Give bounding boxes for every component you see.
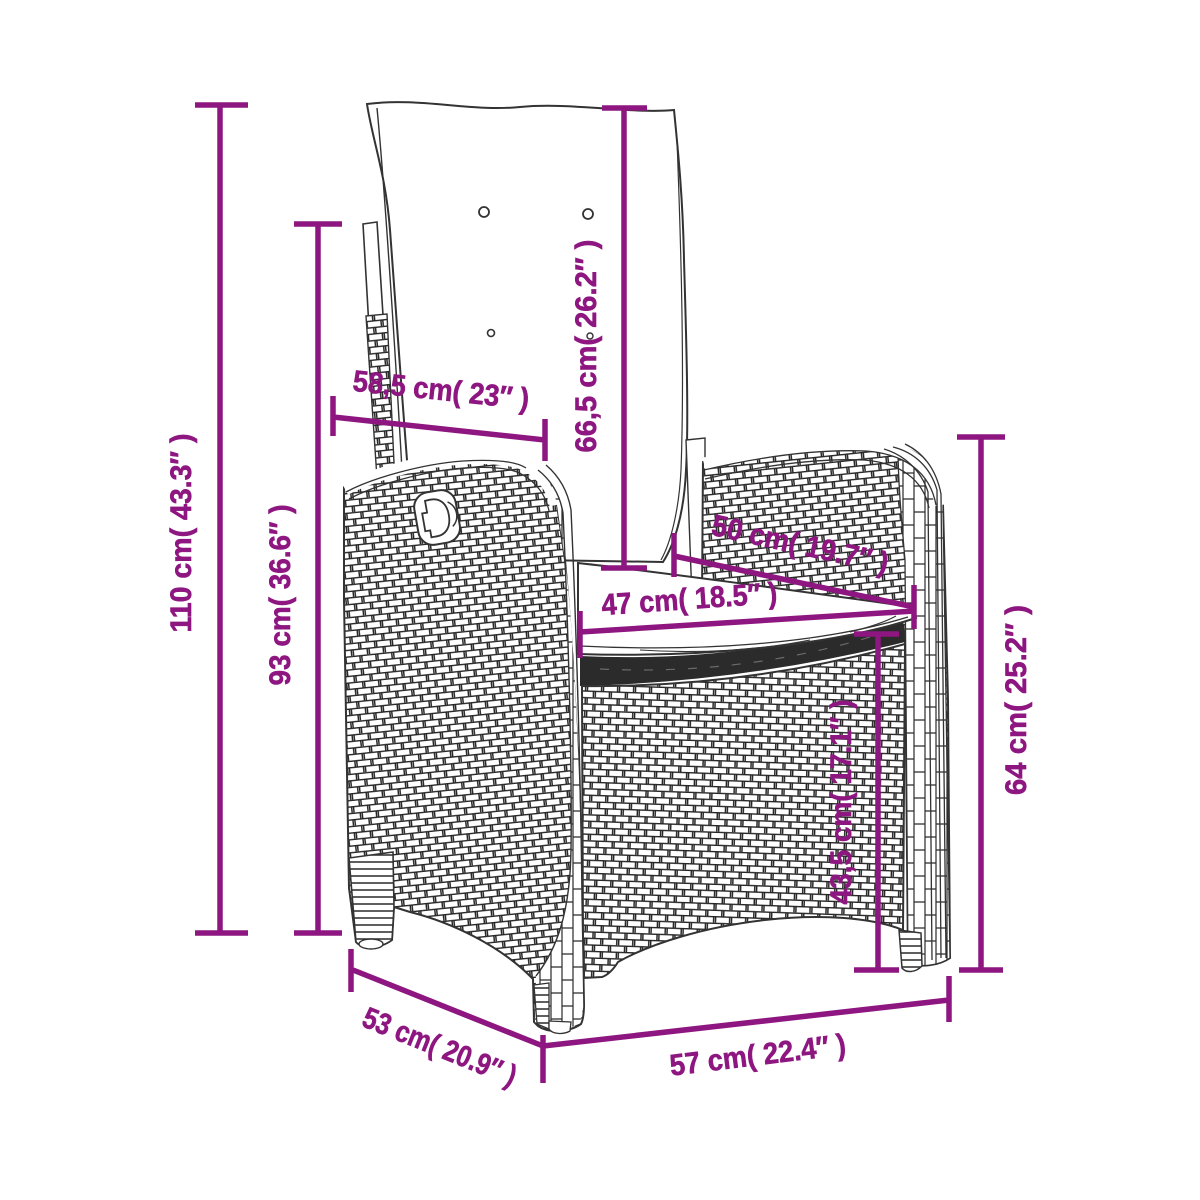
svg-text:64 cm( 25.2″ ): 64 cm( 25.2″ )	[1000, 605, 1033, 795]
svg-text:110 cm( 43.3″ ): 110 cm( 43.3″ )	[165, 434, 198, 633]
svg-text:93 cm( 36.6″ ): 93 cm( 36.6″ )	[264, 505, 297, 686]
svg-text:66,5 cm( 26.2″ ): 66,5 cm( 26.2″ )	[570, 240, 603, 453]
svg-text:43,5 cm( 17.1″ ): 43,5 cm( 17.1″ )	[825, 700, 858, 905]
